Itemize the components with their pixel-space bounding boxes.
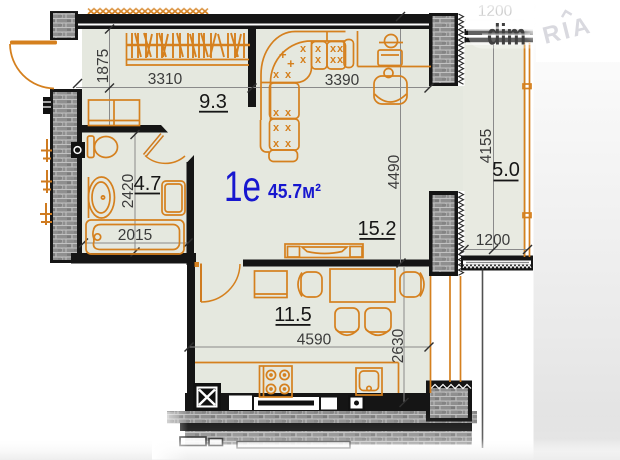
svg-text:2015: 2015 [118,227,152,244]
svg-text:x: x [273,69,280,81]
svg-text:+: + [287,56,295,71]
svg-text:x: x [273,122,280,134]
svg-text:x: x [273,138,280,150]
svg-text:x: x [285,107,292,119]
svg-text:2630: 2630 [390,328,407,363]
svg-text:1875: 1875 [95,49,112,83]
svg-text:+: + [279,47,287,62]
svg-text:45.7м²: 45.7м² [268,181,321,203]
svg-text:x: x [315,54,322,66]
svg-text:9.3: 9.3 [199,91,227,113]
svg-text:11.5: 11.5 [274,304,311,326]
svg-text:x: x [285,138,292,150]
svg-text:4490: 4490 [386,154,403,189]
svg-text:5.0: 5.0 [492,159,520,181]
svg-text:x: x [285,122,292,134]
svg-text:4590: 4590 [297,332,332,349]
svg-text:x: x [330,54,337,66]
svg-text:x: x [300,54,307,66]
svg-text:1е: 1е [224,163,261,211]
svg-text:x: x [337,54,344,66]
svg-text:4.7: 4.7 [134,173,162,195]
svg-text:x: x [273,107,280,119]
svg-text:15.2: 15.2 [358,218,397,240]
svg-text:3390: 3390 [325,72,360,89]
svg-text:1200: 1200 [476,232,511,249]
svg-text:3310: 3310 [148,71,183,88]
